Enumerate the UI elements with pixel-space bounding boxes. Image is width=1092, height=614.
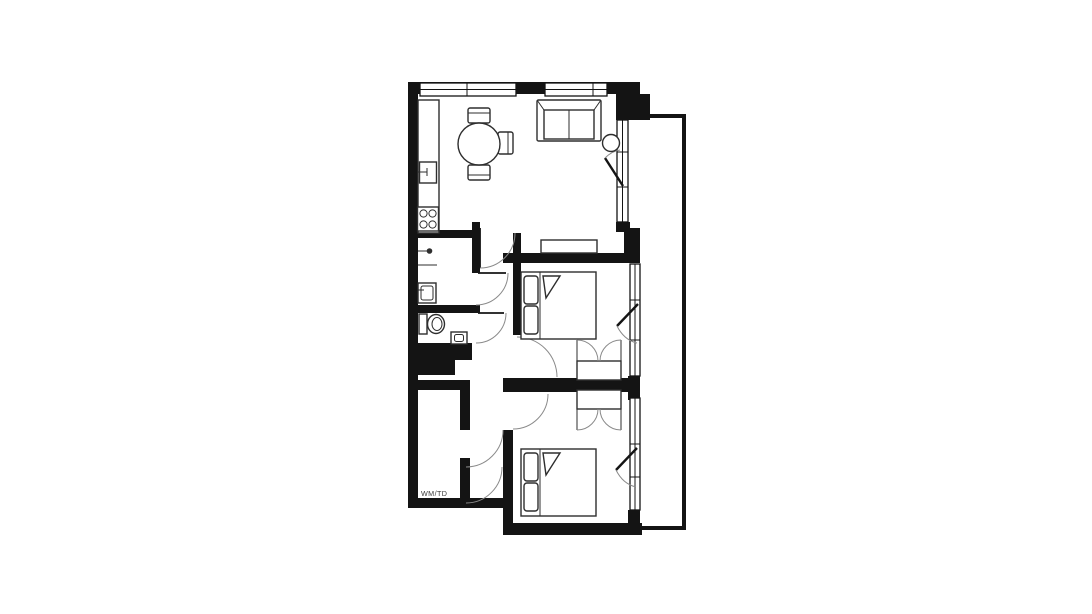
wall-bedroom1-left [513, 262, 521, 335]
wall-right-bottom [628, 510, 640, 526]
wardrobe-1 [577, 340, 621, 380]
utility-room: WM/TD [421, 489, 447, 498]
door-vestibule [466, 467, 502, 503]
shaft-block-b [408, 355, 455, 375]
floorplan-drawing: WM/TD [0, 0, 1092, 614]
dining-chair-bottom [468, 165, 490, 180]
living-room [537, 100, 620, 253]
washbasin [418, 283, 436, 303]
bed-2 [521, 449, 596, 516]
side-table [603, 135, 620, 152]
wc-basin [451, 332, 467, 344]
kitchen [418, 100, 440, 233]
floorplan-canvas: WM/TD [0, 0, 1092, 614]
wall-right-jog-b [624, 228, 640, 255]
wall-bathroom-right [472, 222, 480, 273]
door-bedroom2 [513, 394, 548, 429]
dining-chair-top [468, 108, 490, 123]
shower-fixture [418, 248, 437, 265]
window-top-left [420, 83, 516, 96]
wc [419, 314, 467, 344]
dining-area [458, 108, 513, 180]
sideboard [541, 240, 597, 253]
wall-utility-top [408, 380, 470, 390]
wardrobe-2 [577, 390, 621, 430]
dining-table [458, 123, 500, 165]
wall-right-mid [628, 376, 640, 400]
wall-utility-right-lower [460, 458, 470, 503]
sofa [537, 100, 601, 141]
kitchen-sink [418, 162, 437, 183]
door-bathroom [476, 273, 508, 305]
wall-utility-right-upper [460, 390, 470, 430]
wall-bedroom2-left [503, 430, 513, 535]
wall-wc-right-stub [472, 305, 480, 313]
door-utility [466, 430, 503, 467]
utility-label: WM/TD [421, 489, 447, 498]
wall-left [408, 82, 418, 508]
wall-bedroom2-bottom [503, 523, 642, 535]
window-living-right [617, 120, 628, 222]
bathroom [418, 248, 437, 303]
door-bedroom1 [517, 337, 557, 377]
toilet [419, 314, 445, 334]
balcony-outline [638, 116, 684, 528]
bedroom-2 [521, 390, 621, 516]
bed-1 [521, 272, 596, 339]
window-top-right [545, 83, 607, 96]
hob [418, 207, 439, 231]
wall-bathroom-divider [408, 305, 480, 313]
door-wc [476, 313, 506, 343]
window-bedroom1 [630, 264, 640, 376]
wall-bedroom1-top [503, 253, 640, 263]
bedroom-1 [521, 272, 621, 380]
wall-bottom-left [408, 498, 513, 508]
balcony [638, 116, 684, 528]
